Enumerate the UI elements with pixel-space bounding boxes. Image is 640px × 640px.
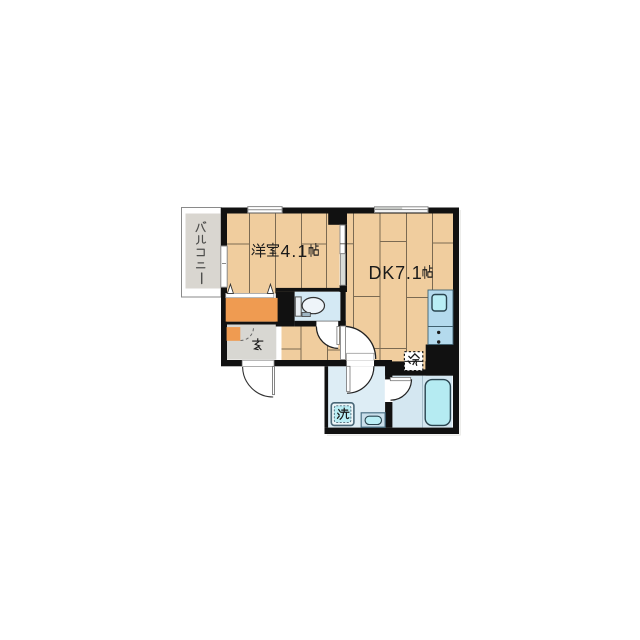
svg-text:DK7.1: DK7.1 (369, 263, 423, 283)
svg-text:4.1: 4.1 (281, 241, 309, 261)
